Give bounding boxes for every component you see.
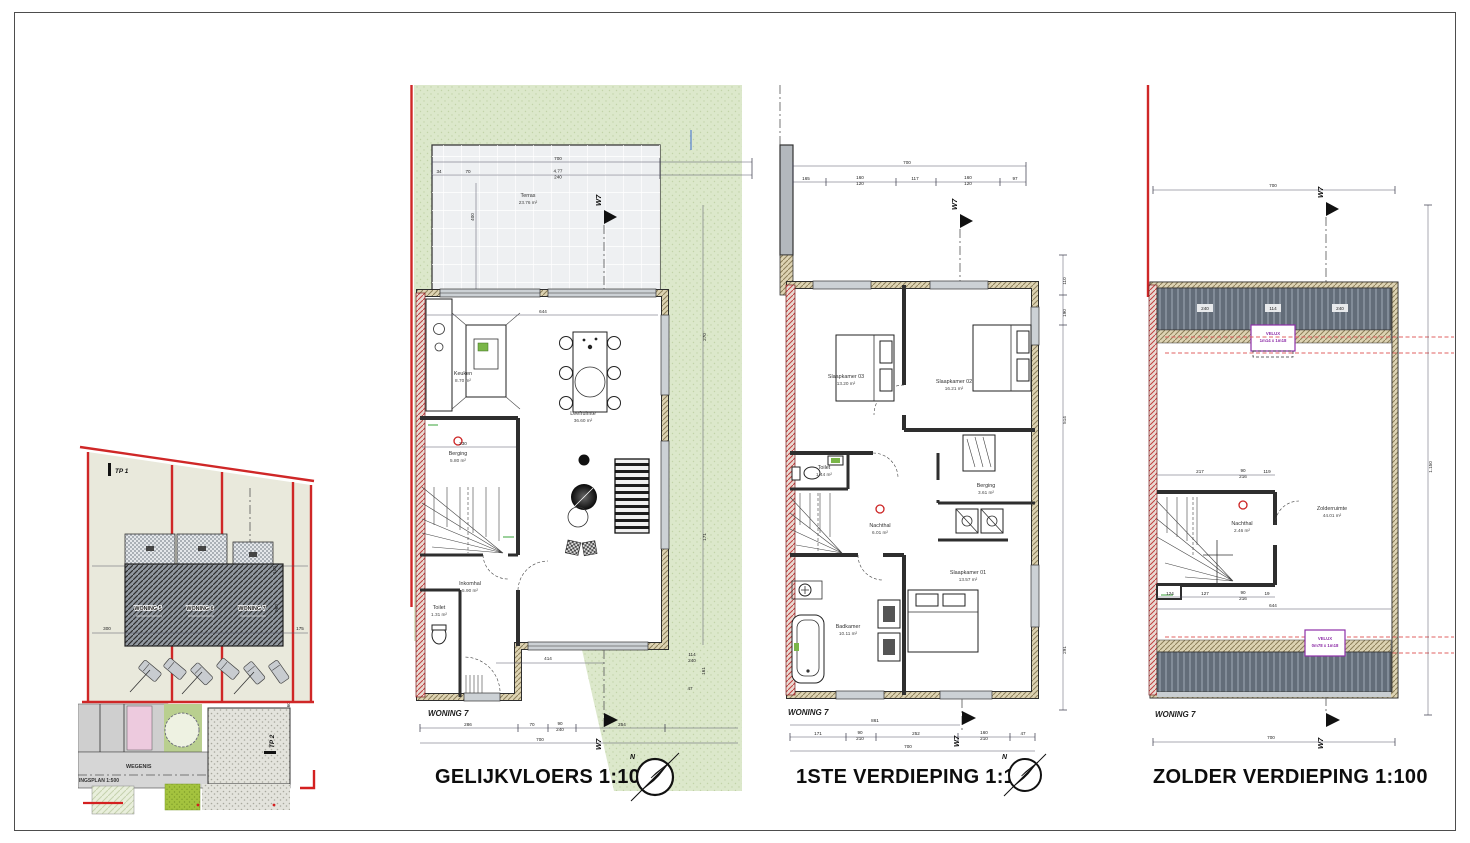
road-label: WEGENIS: [126, 764, 152, 770]
site-road-zone: WEGENIS INGSPLAN 1:500 TP 2: [78, 704, 290, 788]
ff-orientation-marker-bottom: W7: [952, 699, 976, 747]
dim-160b: 160: [964, 175, 972, 180]
dim-644: 644: [539, 309, 547, 314]
at-orientation-marker-top: W7: [1316, 186, 1339, 285]
dim-414: 414: [544, 656, 552, 661]
leefruimte-name: Leefruimte: [570, 411, 595, 417]
dim-19: 19: [1264, 591, 1270, 596]
gf-title: GELIJKVLOERS 1:100: [435, 766, 652, 788]
dim-700: 700: [903, 160, 911, 165]
sk02-name: Slaapkamer 02: [936, 379, 972, 385]
site-dim-300: 300: [103, 626, 111, 631]
w7-label-bottom: W7: [1316, 737, 1325, 749]
zolderruimte-area: 44.01 m²: [1323, 513, 1342, 518]
dim-124: 124: [1166, 591, 1174, 596]
tp2-label: TP 2: [269, 734, 276, 748]
at-nachthal-name: Nachthal: [1231, 521, 1252, 527]
parking-spot-pink: [127, 706, 152, 750]
dim-700: 700: [554, 156, 562, 161]
velux-bottom-line1: VELUX: [1318, 636, 1332, 641]
at-bottom-labels: WONING 7 W7 700: [1153, 697, 1395, 749]
zolderruimte-name: Zolderruimte: [1317, 506, 1347, 512]
site-dim-100: 100: [272, 566, 277, 574]
first-floor-panel: 700 165 160 120 117 160 120 97 W7: [778, 85, 1090, 830]
dim-240r: 240: [688, 658, 696, 663]
knee-wall-bottom: [1157, 640, 1391, 652]
party-wall: [416, 293, 425, 697]
badkamer-area: 10.11 m²: [839, 631, 858, 636]
ff-toilet-name: Toilet: [818, 465, 831, 471]
ff-compass: N: [1002, 754, 1046, 796]
boundary-corner: [300, 770, 314, 788]
ff-bottom-dims: WONING 7 861 171 90 210 252 160 210 47 7…: [788, 708, 1035, 751]
woning5-label: WONING 5: [134, 606, 161, 612]
dim-1150: 1.150: [1428, 461, 1433, 473]
dim-210b: 210: [980, 736, 988, 741]
at-right-dims: 1.150: [1424, 205, 1433, 715]
front-door: [464, 693, 500, 701]
dim-400: 400: [470, 213, 475, 221]
inkomhal-area: 5.90 m²: [462, 588, 478, 593]
ff-orientation-marker-top: W7: [950, 198, 973, 285]
dim-114: 114: [688, 652, 696, 657]
compass-n-label: N: [1002, 754, 1008, 761]
dim-117: 117: [911, 176, 919, 181]
w7-label: W7: [950, 198, 959, 210]
tp1-label: TP 1: [115, 468, 129, 475]
toilet-area: 1.31 m²: [431, 612, 447, 617]
dim-190: 190: [1062, 309, 1067, 317]
roof-plane-bottom: [1157, 652, 1391, 692]
tree: [165, 713, 199, 747]
sk03-area: 13.20 m²: [837, 381, 856, 386]
neighbour-wall-stub: [780, 145, 793, 255]
dim-70b: 70: [529, 722, 535, 727]
ff-nachthal-name: Nachthal: [869, 523, 890, 529]
eaves-strip: [1157, 692, 1391, 697]
party-wall: [1149, 285, 1157, 695]
site-dim-175: 175: [296, 626, 304, 631]
dim-160c: 160: [980, 730, 988, 735]
dim-230: 230: [459, 441, 467, 446]
inkomhal-name: Inkomhal: [459, 581, 481, 587]
tp2-paving: [208, 708, 290, 784]
badkamer-name: Badkamer: [836, 624, 861, 630]
sk03-name: Slaapkamer 03: [828, 374, 864, 380]
terras-name: Terras: [521, 193, 536, 199]
dim-861: 861: [871, 718, 879, 723]
dim-252: 252: [912, 731, 920, 736]
w7-label: W7: [594, 194, 603, 206]
ground-floor-panel: Terras 23.76 m² 700 34 70 4.77 240 400 W…: [408, 85, 753, 830]
site-plan-panel: TP 1 WONING 5 WONING 6 WONING 7 300 175 …: [78, 430, 318, 825]
dim-70: 70: [465, 169, 471, 174]
sofa: [615, 459, 649, 533]
dim-477: 4.77: [554, 169, 563, 174]
dim-216: 216: [1239, 474, 1247, 479]
at-nachthal-area: 2.46 m²: [1234, 528, 1250, 533]
dim-90b: 90: [1240, 590, 1246, 595]
dim-160: 160: [856, 175, 864, 180]
dim-161: 161: [701, 667, 706, 675]
sk01-name: Slaapkamer 01: [950, 570, 986, 576]
ff-woning-label: WONING 7: [788, 708, 829, 717]
dim-47: 47: [687, 686, 693, 691]
bed-03: [836, 335, 894, 401]
velux-top-line2: 1m14 x 1m18: [1260, 338, 1287, 343]
dim-97: 97: [1012, 176, 1018, 181]
dim-700b: 700: [1267, 735, 1275, 740]
dim-120: 120: [856, 181, 864, 186]
dim-47: 47: [1020, 731, 1026, 736]
ff-building: Slaapkamer 03 13.20 m² Slaapkamer 02 16.…: [786, 281, 1039, 699]
dim-291: 291: [1062, 646, 1067, 654]
dim-210: 210: [856, 736, 864, 741]
site-dim-960: 960: [274, 604, 279, 612]
dim-34: 34: [436, 169, 442, 174]
dim-120b: 120: [964, 181, 972, 186]
woning6-label: WONING 6: [186, 606, 213, 612]
w7-label-bottom: W7: [594, 738, 603, 750]
w7-triangle-bottom: [1326, 713, 1340, 727]
dim-286: 286: [464, 722, 472, 727]
berging-name: Berging: [449, 451, 468, 457]
leefruimte-area: 36.60 m²: [574, 418, 593, 423]
w7-label: W7: [1316, 186, 1325, 198]
attic-stair-flight: [963, 435, 995, 471]
terrace: Terras 23.76 m²: [432, 145, 660, 291]
dining-table: [560, 332, 621, 412]
dim-171r: 171: [702, 533, 707, 541]
attic-floor-panel: 700 W7 240 114 240: [1145, 85, 1455, 830]
dim-90: 90: [857, 730, 863, 735]
sk02-area: 16.21 m²: [945, 386, 964, 391]
ff-nachthal-area: 6.01 m²: [872, 530, 888, 535]
dim-700b: 700: [536, 737, 544, 742]
dim-114: 114: [1269, 306, 1277, 311]
drawing-sheet: TP 1 WONING 5 WONING 6 WONING 7 300 175 …: [0, 0, 1470, 843]
dim-216b: 216: [1239, 596, 1247, 601]
dim-90: 90: [1240, 468, 1246, 473]
toilet-name: Toilet: [433, 605, 446, 611]
berging-area: 5.80 m²: [450, 458, 466, 463]
ff-toilet-area: 1.44 m²: [816, 472, 832, 477]
at-title: ZOLDER VERDIEPING 1:100: [1153, 766, 1428, 788]
dim-700b: 700: [904, 744, 912, 749]
velux-bottom-line2: 0m78 x 1m18: [1312, 643, 1339, 648]
bed-02: [973, 325, 1031, 391]
dim-171: 171: [814, 731, 822, 736]
ff-title: 1STE VERDIEPING 1:100: [796, 766, 1038, 788]
bed-01: [908, 590, 978, 652]
dim-110: 110: [1062, 277, 1067, 285]
dim-240: 240: [1201, 306, 1209, 311]
velux-bottom: VELUX 0m78 x 1m18: [1305, 630, 1345, 656]
dim-644: 644: [1269, 603, 1277, 608]
w7-label-bottom: W7: [952, 735, 961, 747]
dim-127: 127: [1201, 591, 1209, 596]
plan-scale-label: INGSPLAN 1:500: [79, 778, 119, 784]
sk01-area: 13.57 m²: [959, 577, 978, 582]
dim-254: 254: [618, 722, 626, 727]
at-top-dims: 700: [1153, 183, 1395, 194]
gf-woning-label: WONING 7: [428, 709, 469, 718]
dim-270: 270: [702, 333, 707, 341]
dim-514: 514: [1062, 416, 1067, 424]
at-building: 240 114 240 VELUX 1m14 x 1m18: [1149, 285, 1454, 697]
keuken-name: Keuken: [454, 371, 472, 377]
ff-berging-name: Berging: [977, 483, 996, 489]
dim-119: 119: [1263, 469, 1271, 474]
ff-right-dims: 110 190 514 291: [1059, 255, 1067, 710]
at-woning-label: WONING 7: [1155, 710, 1196, 719]
dim-217: 217: [1196, 469, 1204, 474]
ff-berging-area: 3.61 m²: [978, 490, 994, 495]
dim-240b: 240: [556, 727, 564, 732]
keuken-area: 8.70 m²: [455, 378, 471, 383]
ff-top-dims: 700 165 160 120 117 160 120 97: [793, 160, 1026, 186]
dim-165: 165: [802, 176, 810, 181]
velux-top-line1: VELUX: [1266, 331, 1280, 336]
dim-90: 90: [557, 721, 563, 726]
dim-240b: 240: [1336, 306, 1344, 311]
terras-area: 23.76 m²: [519, 200, 538, 205]
dim-240: 240: [554, 175, 562, 180]
woning7-label: WONING 7: [238, 606, 265, 612]
side-table: [579, 455, 590, 466]
site-houses: WONING 5 WONING 6 WONING 7: [125, 564, 283, 646]
dim-700: 700: [1269, 183, 1277, 188]
gf-building: Keuken 8.70 m² Leefruimte 36.60 m²: [416, 289, 669, 701]
